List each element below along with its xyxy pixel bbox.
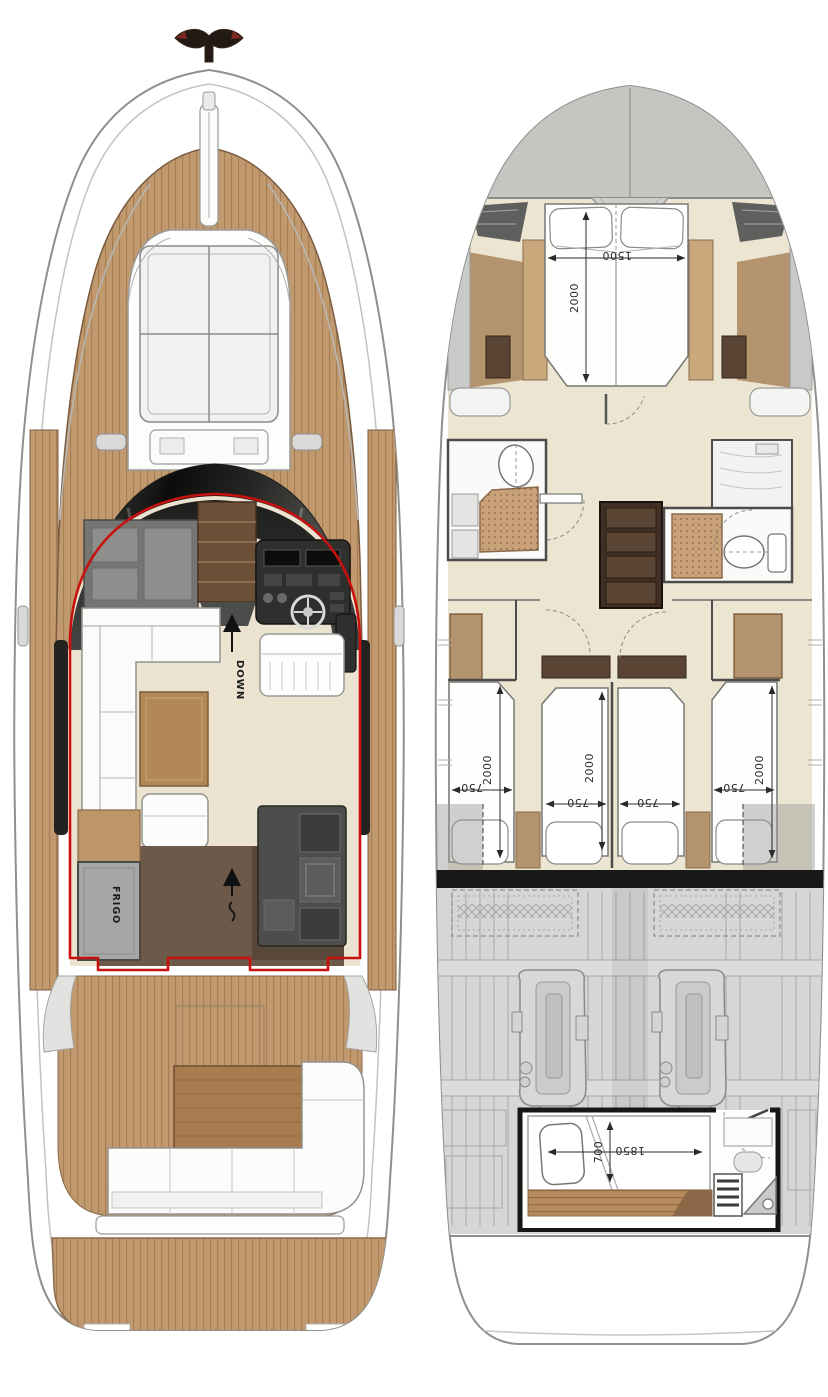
crew-cabin: 700 1850 — [518, 1108, 780, 1232]
head-starboard — [664, 508, 792, 582]
locker-starboard — [722, 336, 746, 378]
salon-ottoman — [142, 794, 208, 848]
fridge: FRIGO — [78, 862, 140, 960]
head-port-door — [540, 494, 582, 503]
bed3-width: 750 — [637, 796, 660, 809]
locker-port — [486, 336, 510, 378]
galley-counter-top — [78, 810, 140, 862]
shower-room-starboard — [712, 440, 792, 508]
pillow — [546, 822, 602, 864]
crew-cabinet — [724, 1118, 772, 1146]
engine-bulkhead — [436, 870, 826, 888]
anchor-icon — [175, 29, 243, 62]
bow-console — [150, 430, 268, 464]
bench-port — [450, 388, 510, 416]
salon-table — [140, 692, 208, 786]
crew-bed-width: 700 — [592, 1141, 605, 1164]
deck-overlap-port — [436, 804, 483, 870]
staircase — [600, 502, 662, 608]
steering-wheel — [292, 596, 324, 628]
bedside-shelf-starboard — [689, 240, 713, 380]
bed2-length: 2000 — [583, 753, 596, 783]
helm-seat — [260, 634, 344, 696]
crew-bed-length: 1850 — [615, 1144, 645, 1157]
nightstand — [686, 812, 710, 868]
headboard-shelf — [618, 656, 686, 678]
wardrobe-port — [450, 614, 482, 680]
floorplan-canvas: DOWN — [0, 0, 828, 1397]
crew-ladder — [714, 1174, 742, 1216]
bed2-width: 750 — [567, 796, 590, 809]
bench-starboard — [750, 388, 810, 416]
vanity-port — [452, 494, 478, 526]
fairlead-port — [18, 606, 28, 646]
bedside-shelf-port — [523, 240, 547, 380]
hull-band-port — [448, 238, 470, 390]
bed1-length: 2000 — [481, 755, 494, 785]
engine-port — [512, 970, 588, 1122]
side-deck-teak-port — [30, 430, 58, 990]
bed4-width: 750 — [723, 781, 746, 794]
master-bed-width: 1500 — [602, 249, 632, 262]
swim-platform — [52, 1238, 388, 1334]
salon-wood-shelf — [198, 502, 256, 602]
engine-starboard — [652, 970, 728, 1122]
cabin-window-port — [54, 640, 68, 835]
wardrobe-starboard — [734, 614, 782, 678]
hull-window-starboard — [732, 202, 790, 242]
pillow — [539, 1123, 585, 1186]
cockpit-table — [174, 1066, 302, 1148]
side-deck-teak-starboard — [368, 430, 396, 990]
hull-window-port — [470, 202, 528, 242]
headboard-shelf — [542, 656, 610, 678]
down-label: DOWN — [234, 660, 245, 700]
windlass — [200, 92, 218, 226]
galley-counter — [258, 806, 346, 946]
fairlead-starboard — [394, 606, 404, 646]
bed1-width: 750 — [461, 781, 484, 794]
frigo-label: FRIGO — [110, 886, 121, 924]
salon-cabinet-port — [84, 520, 198, 608]
hull-band-starboard — [790, 238, 812, 390]
lower-deck-plan: 2000 1500 — [430, 80, 828, 1344]
pillow — [622, 822, 678, 864]
main-deck-plan: DOWN — [14, 29, 404, 1334]
master-bed — [545, 204, 688, 386]
master-bed-length: 2000 — [568, 283, 581, 313]
deck-overlap-starboard — [743, 804, 815, 870]
bed4-length: 2000 — [753, 755, 766, 785]
transom-seat-back — [96, 1216, 344, 1234]
yacht-floorplan-image: DOWN — [0, 0, 828, 1397]
nightstand — [516, 812, 540, 868]
